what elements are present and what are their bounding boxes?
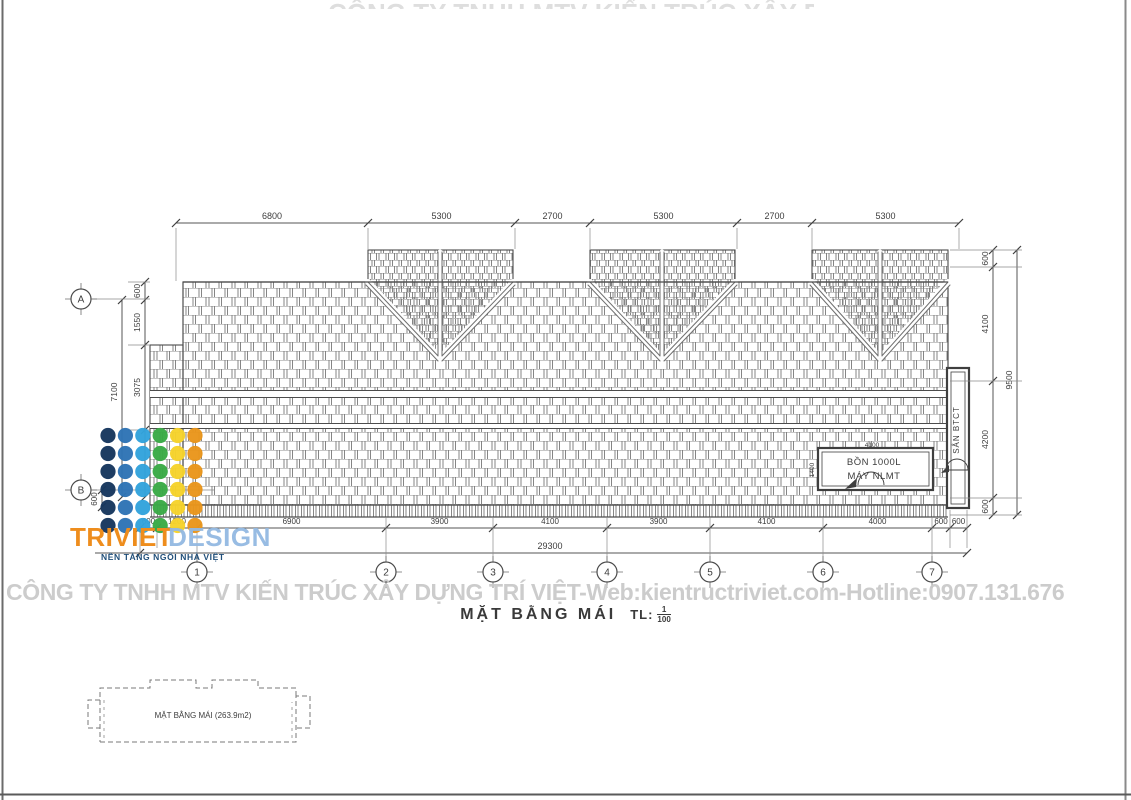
logo-dot bbox=[100, 446, 115, 461]
dim-label: 600 bbox=[90, 492, 99, 506]
logo-dot bbox=[135, 428, 150, 443]
grid-bubble-label: 6 bbox=[820, 568, 826, 579]
logo-dot bbox=[187, 464, 202, 479]
dim-label: 600 bbox=[980, 499, 990, 513]
drawing-scale-prefix: TL: bbox=[630, 607, 653, 622]
logo-dot bbox=[135, 446, 150, 461]
logo-dot bbox=[170, 482, 185, 497]
dim-label: 3075 bbox=[132, 378, 142, 397]
logo-dot bbox=[187, 446, 202, 461]
dim-label: 600 bbox=[132, 284, 142, 298]
logo-dot bbox=[100, 500, 115, 515]
logo-dot bbox=[118, 500, 133, 515]
logo-dot bbox=[135, 482, 150, 497]
dim-label: 4100 bbox=[541, 517, 559, 526]
dim-label: 2700 bbox=[764, 211, 784, 221]
grid-bubble-label: 7 bbox=[929, 568, 935, 579]
scale-numerator: 1 bbox=[657, 606, 670, 614]
dim-label: 3900 bbox=[431, 517, 449, 526]
grid-bubble-label: A bbox=[78, 295, 85, 306]
tank-dim-top: 4100 bbox=[865, 442, 880, 449]
logo-wordmark: TRIVIETDESIGN bbox=[70, 522, 271, 553]
logo-dot bbox=[153, 428, 168, 443]
logo-dot bbox=[135, 500, 150, 515]
drawing-title-label: MẶT BẰNG MÁI bbox=[460, 606, 616, 623]
logo-dot bbox=[118, 482, 133, 497]
drawing-title: MẶT BẰNG MÁITL:1100 bbox=[0, 606, 1131, 624]
dim-label: 9500 bbox=[1004, 370, 1014, 389]
logo-dot bbox=[170, 464, 185, 479]
logo-dot bbox=[153, 500, 168, 515]
logo-word-design: DESIGN bbox=[168, 522, 271, 552]
watermark-text: CÔNG TY TNHH MTV KIẾN TRÚC XÂY DỰNG TRÍ … bbox=[6, 579, 1126, 606]
drawing-scale-fraction: 1100 bbox=[657, 606, 670, 624]
dim-label: 6800 bbox=[262, 211, 282, 221]
dim-label: 3900 bbox=[650, 517, 668, 526]
logo-dot bbox=[118, 464, 133, 479]
grid-bubble-label: 1 bbox=[194, 568, 200, 579]
logo-word-triviet: TRIVIET bbox=[70, 522, 173, 552]
logo-dot bbox=[153, 464, 168, 479]
dim-label: 5300 bbox=[431, 211, 451, 221]
grid-bubble-label: 3 bbox=[490, 568, 496, 579]
dim-label: 7100 bbox=[109, 382, 119, 401]
dim-label: 1550 bbox=[132, 313, 142, 332]
grid-bubble-label: B bbox=[78, 486, 85, 497]
logo-dot bbox=[187, 482, 202, 497]
tank-dim-left: 1400 bbox=[809, 462, 816, 477]
dim-label: 5300 bbox=[875, 211, 895, 221]
dim-label: 2700 bbox=[542, 211, 562, 221]
scale-denominator: 100 bbox=[657, 614, 670, 624]
logo-dot bbox=[170, 500, 185, 515]
logo-dot bbox=[153, 482, 168, 497]
logo-dot bbox=[100, 464, 115, 479]
dim-label: 29300 bbox=[537, 541, 562, 551]
logo-dot bbox=[153, 446, 168, 461]
dim-label: 4100 bbox=[758, 517, 776, 526]
dim-label: 6900 bbox=[283, 517, 301, 526]
logo-dot bbox=[118, 428, 133, 443]
logo-tagline: NỀN TẢNG NGÔI NHÀ VIỆT bbox=[101, 552, 225, 562]
logo-dot bbox=[170, 446, 185, 461]
dim-label: 4000 bbox=[869, 517, 887, 526]
logo-dot bbox=[135, 464, 150, 479]
dim-label: 600 bbox=[934, 517, 948, 526]
eave-strip bbox=[150, 505, 948, 517]
dim-label: 600 bbox=[980, 251, 990, 265]
grid-bubble-label: 4 bbox=[604, 568, 610, 579]
tank-label-line1: BỒN 1000L bbox=[847, 456, 901, 468]
logo-dot bbox=[100, 428, 115, 443]
dim-label: 600 bbox=[952, 517, 966, 526]
dim-label: 5300 bbox=[653, 211, 673, 221]
key-plan-label: MẶT BẰNG MÁI (263.9m2) bbox=[155, 711, 252, 720]
roof-plan-drawing: BỒN 1000L MÁY NLMT 4100 1400 SÂN BTCT 68… bbox=[0, 0, 1131, 800]
drawing-sheet: CÔNG TY TNHH MTV KIẾN TRÚC XÂY DỰNG bbox=[0, 0, 1131, 800]
key-plan: MẶT BẰNG MÁI (263.9m2) bbox=[88, 680, 310, 742]
solar-tank-box: BỒN 1000L MÁY NLMT 4100 1400 bbox=[809, 442, 933, 490]
logo-dot bbox=[170, 428, 185, 443]
dim-label: 4200 bbox=[980, 430, 990, 449]
logo-dot bbox=[118, 446, 133, 461]
logo-dot bbox=[187, 428, 202, 443]
logo-dot bbox=[187, 500, 202, 515]
san-btct-label: SÂN BTCT bbox=[952, 406, 961, 454]
grid-bubble-label: 2 bbox=[383, 568, 389, 579]
logo-dot bbox=[100, 482, 115, 497]
dim-label: 4100 bbox=[980, 314, 990, 333]
grid-bubble-label: 5 bbox=[707, 568, 713, 579]
